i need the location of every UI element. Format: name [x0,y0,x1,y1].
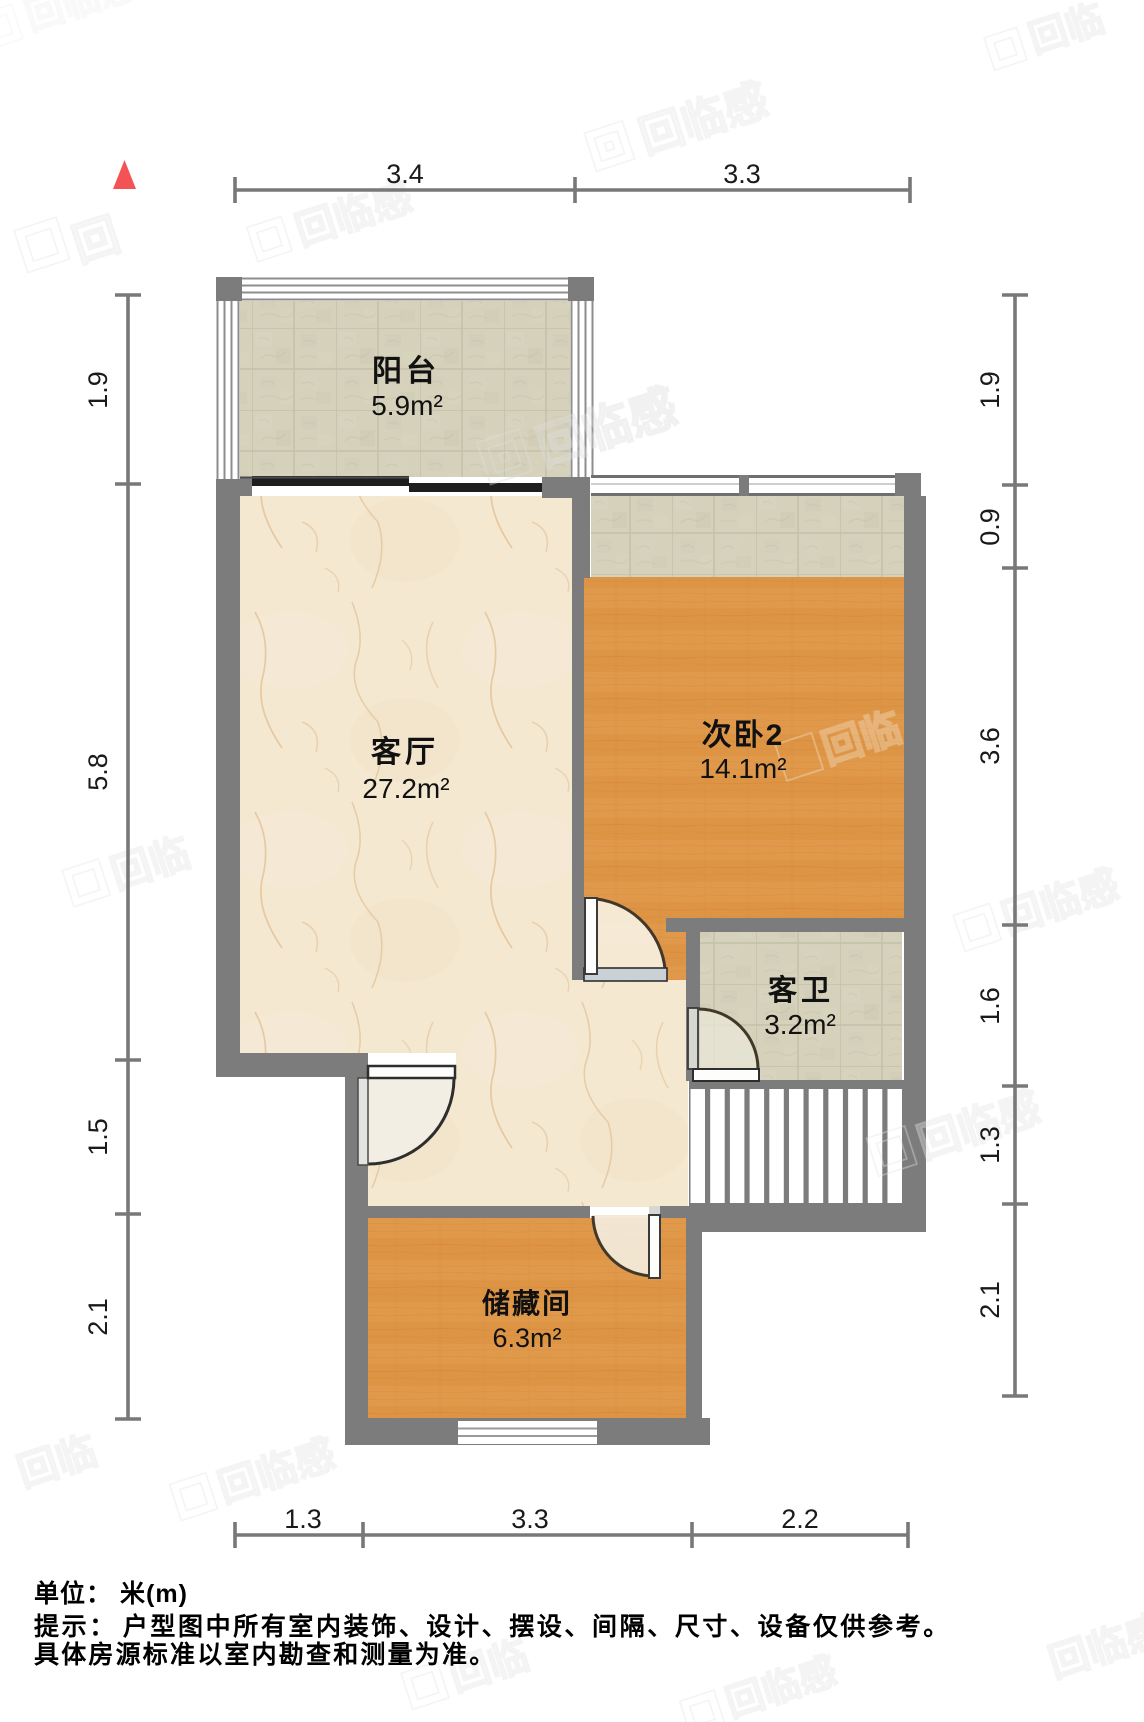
svg-text:2.2: 2.2 [781,1504,819,1534]
svg-text:3.3: 3.3 [723,159,761,189]
svg-text:1.9: 1.9 [975,371,1005,409]
svg-text:客卫: 客卫 [768,973,834,1007]
svg-text:储藏间: 储藏间 [482,1288,572,1319]
svg-text:回临感: 回临感 [21,0,142,39]
svg-text:回临感: 回临感 [633,75,774,162]
svg-text:1.3: 1.3 [975,1126,1005,1164]
svg-text:0.9: 0.9 [975,508,1005,546]
svg-text:3.6: 3.6 [975,727,1005,765]
svg-text:单位：米(m): 单位：米(m) [34,1579,188,1608]
svg-text:提示：户型图中所有室内装饰、设计、摆设、间隔、尺寸、设备仅供: 提示：户型图中所有室内装饰、设计、摆设、间隔、尺寸、设备仅供参考。 [34,1612,951,1641]
svg-text:回临: 回临 [12,1429,102,1496]
svg-text:5.8: 5.8 [83,753,113,791]
svg-text:3.3: 3.3 [511,1504,549,1534]
svg-text:1.5: 1.5 [83,1118,113,1156]
svg-text:回临: 回临 [1024,0,1109,62]
svg-text:具体房源标准以室内勘查和测量为准。: 具体房源标准以室内勘查和测量为准。 [34,1640,496,1669]
svg-text:客厅: 客厅 [371,735,439,769]
svg-text:1.6: 1.6 [975,987,1005,1025]
svg-text:回: 回 [66,208,126,272]
svg-text:次卧2: 次卧2 [702,719,785,752]
svg-text:回临感: 回临感 [721,1651,842,1722]
svg-text:5.9m²: 5.9m² [371,390,443,421]
svg-text:3.2m²: 3.2m² [764,1009,836,1040]
svg-text:回临感: 回临感 [1043,1607,1144,1686]
svg-text:2.1: 2.1 [83,1298,113,1336]
svg-text:27.2m²: 27.2m² [362,773,449,804]
svg-text:2.1: 2.1 [975,1281,1005,1319]
svg-text:回临: 回临 [106,831,196,898]
svg-text:1.9: 1.9 [83,371,113,409]
svg-text:阳台: 阳台 [372,354,440,388]
svg-text:6.3m²: 6.3m² [492,1323,561,1353]
svg-text:回临感: 回临感 [213,1432,341,1511]
svg-text:1.3: 1.3 [284,1504,322,1534]
svg-text:3.4: 3.4 [386,159,424,189]
svg-text:14.1m²: 14.1m² [699,753,786,784]
